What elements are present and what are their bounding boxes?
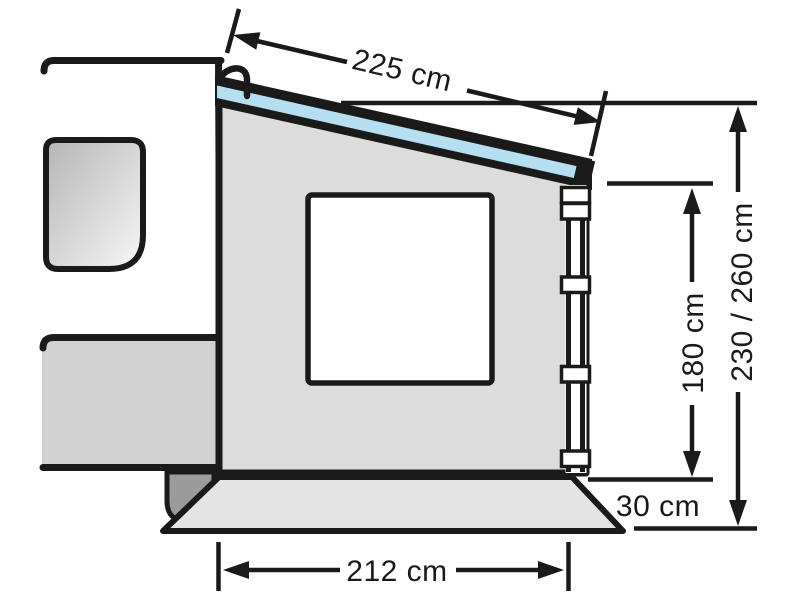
front-pole: [562, 185, 590, 473]
side-wall-window: [308, 195, 492, 383]
dim-label-wall-height: 180 cm: [677, 292, 710, 393]
pole-clip: [562, 188, 590, 204]
pole-clip: [562, 204, 590, 220]
ground-skirt: [163, 477, 623, 531]
awning-dimension-diagram: 225 cm 180 cm 230 / 260 cm 30 cm: [0, 0, 800, 600]
diagram-canvas: 225 cm 180 cm 230 / 260 cm 30 cm: [0, 0, 800, 600]
dim-label-front-width: 212 cm: [346, 555, 447, 588]
pole-clip: [562, 367, 590, 383]
caravan-lower-band: [42, 337, 219, 470]
dim-label-skirt-height: 30 cm: [616, 490, 700, 523]
pole-clip: [562, 277, 590, 293]
pole-clip: [562, 451, 590, 467]
dim-label-mount-height: 230 / 260 cm: [726, 202, 759, 381]
caravan-window: [46, 140, 143, 269]
